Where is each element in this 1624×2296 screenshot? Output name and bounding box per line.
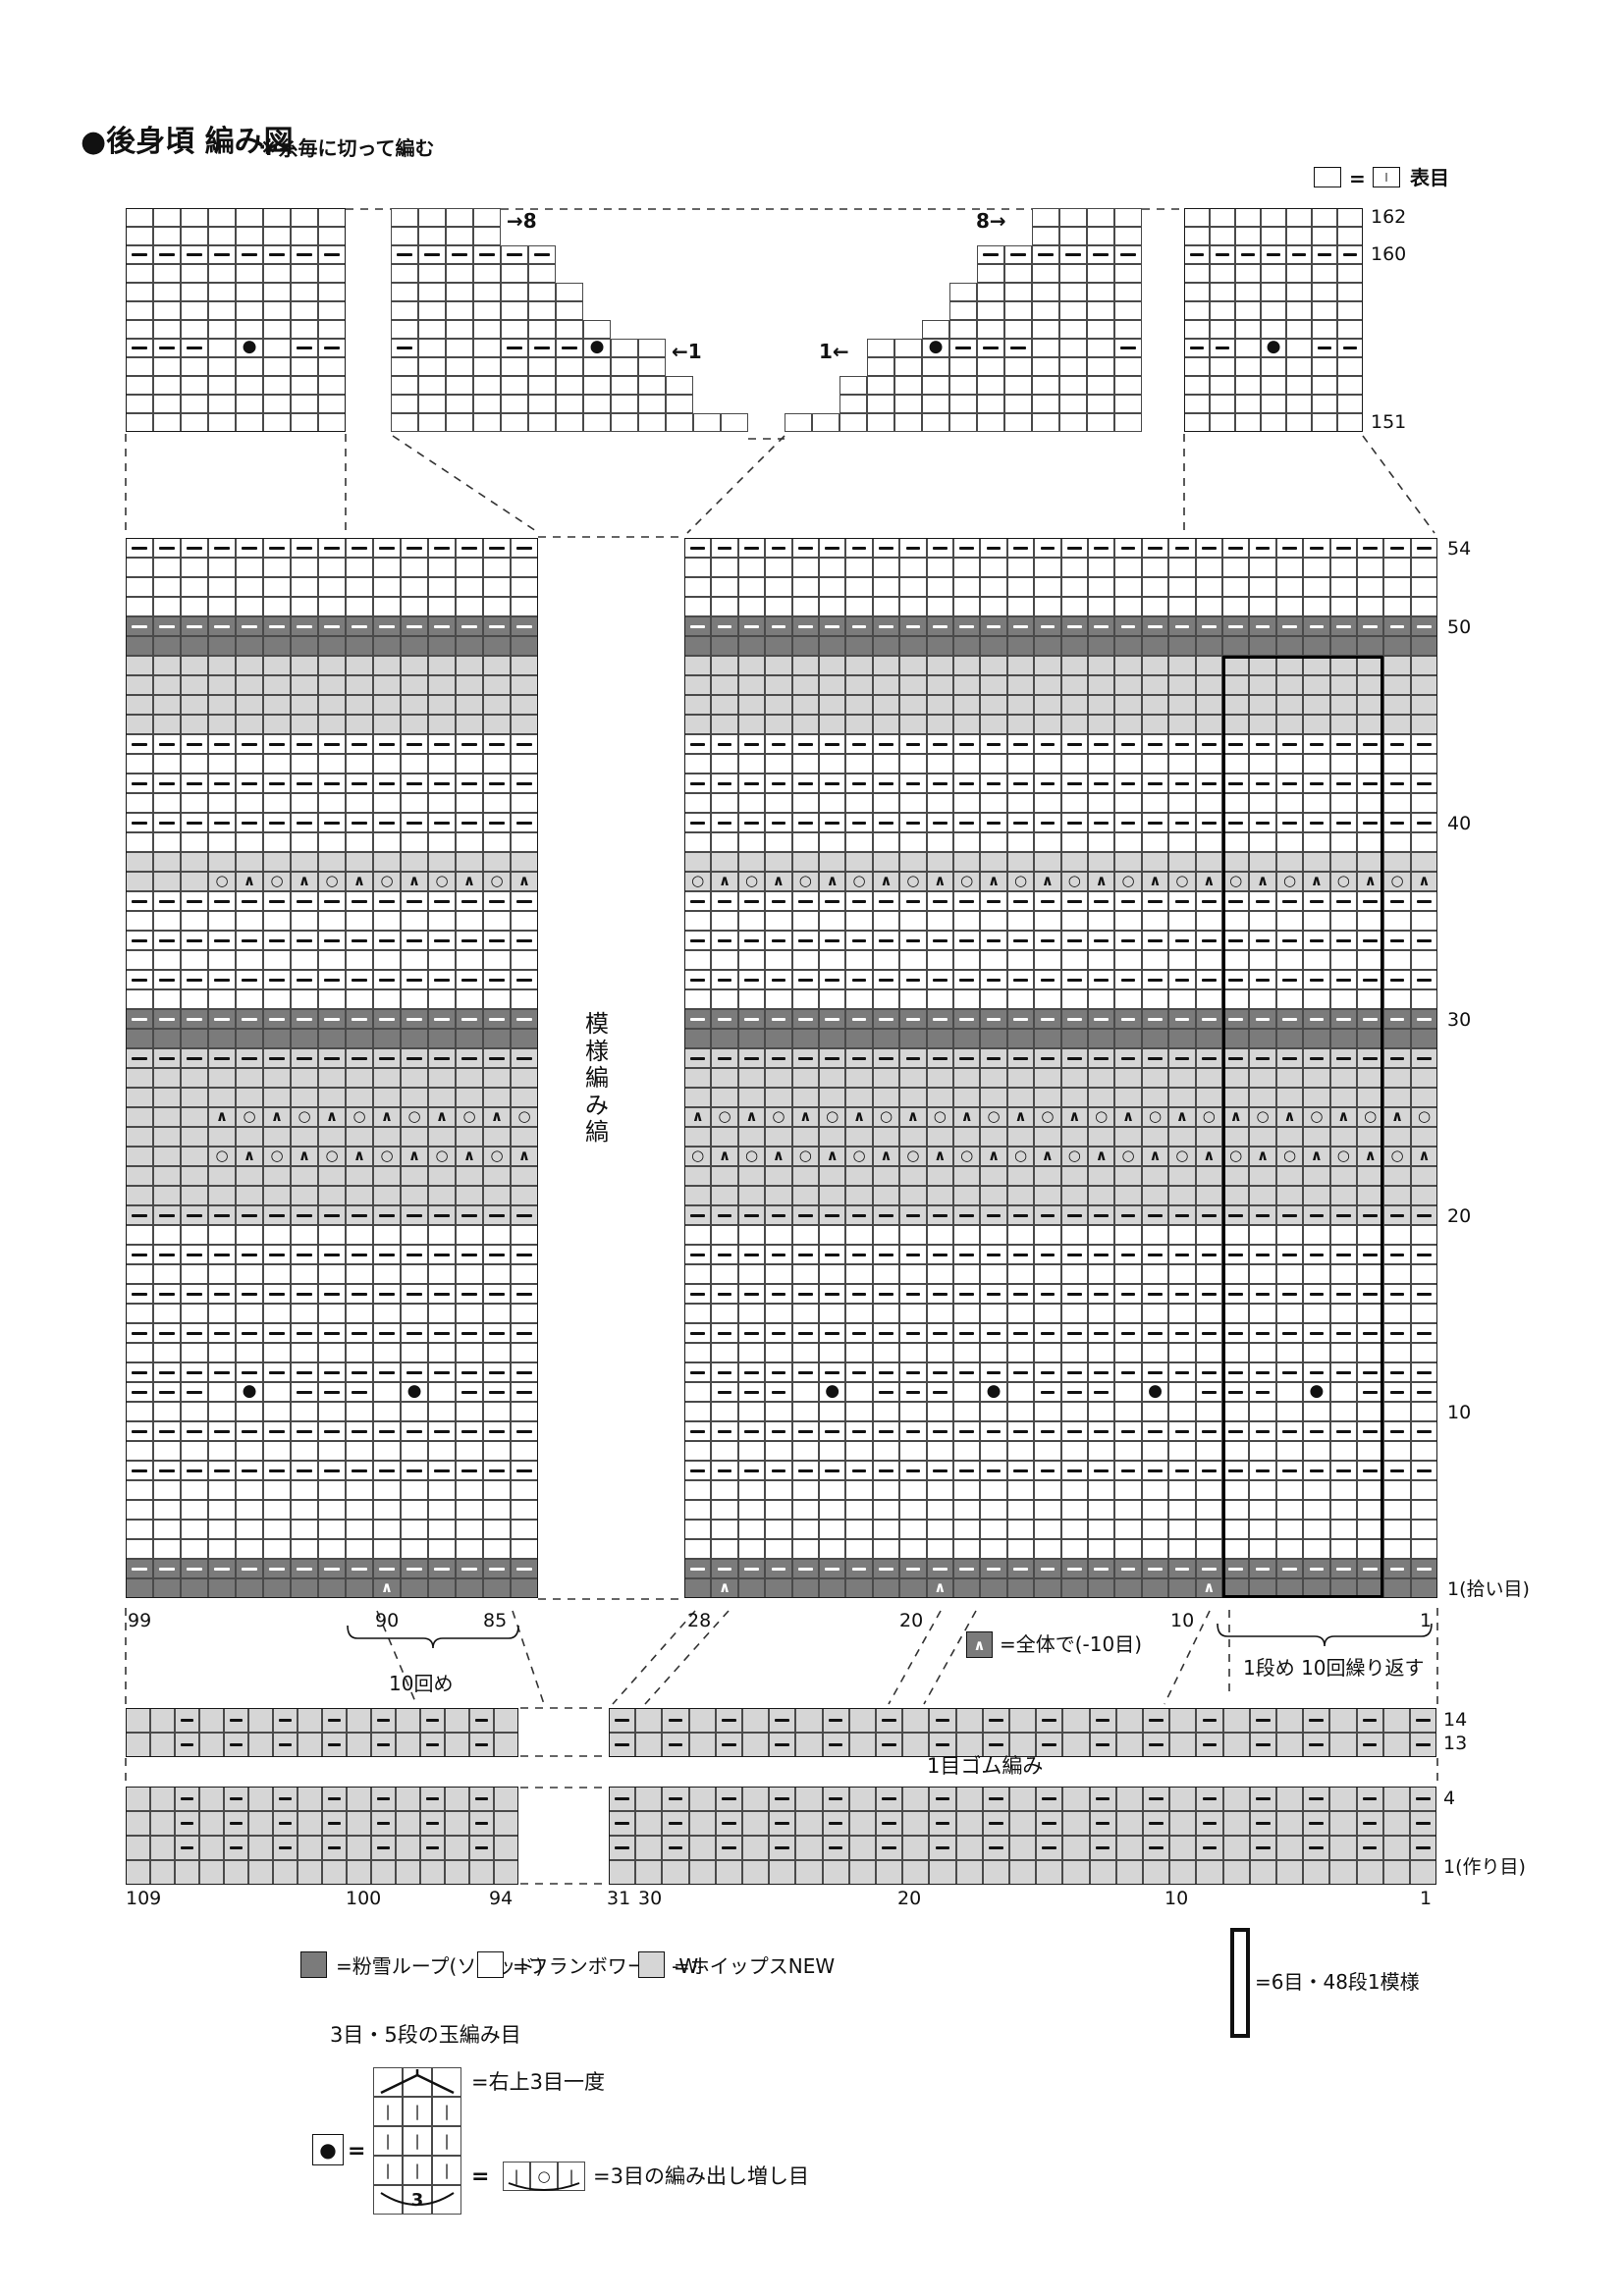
grid-cell bbox=[1411, 656, 1437, 675]
purl-dash-icon bbox=[159, 743, 174, 746]
purl-dash-icon bbox=[181, 1822, 193, 1825]
grid-cell bbox=[684, 1323, 711, 1343]
grid-cell bbox=[291, 1009, 318, 1029]
purl-dash-icon bbox=[489, 1057, 504, 1060]
grid-cell bbox=[1196, 754, 1222, 774]
grid-cell bbox=[263, 1225, 291, 1245]
grid-cell bbox=[1250, 1708, 1276, 1733]
grid-cell bbox=[208, 1539, 236, 1559]
purl-dash-icon bbox=[297, 1371, 311, 1374]
grid-cell bbox=[1061, 1480, 1088, 1500]
purl-dash-icon bbox=[242, 1018, 256, 1021]
grid-cell bbox=[1196, 832, 1222, 852]
grid-cell bbox=[1383, 1559, 1410, 1578]
grid-cell bbox=[1007, 1205, 1034, 1225]
purl-dash-icon bbox=[1390, 1430, 1405, 1433]
grid-cell bbox=[765, 832, 791, 852]
grid-cell bbox=[318, 1205, 346, 1225]
purl-dash-icon bbox=[959, 1430, 974, 1433]
grid-cell bbox=[765, 715, 791, 734]
yarnover-circle-icon: ○ bbox=[325, 874, 338, 888]
grid-cell bbox=[1142, 793, 1168, 813]
purl-dash-icon bbox=[744, 1391, 759, 1394]
grid-cell bbox=[902, 1787, 929, 1811]
grid-cell bbox=[765, 1539, 791, 1559]
grid-cell: ○ bbox=[428, 1147, 456, 1166]
grid-cell: ○ bbox=[1034, 1107, 1060, 1127]
grid-cell bbox=[873, 1088, 899, 1107]
grid-cell bbox=[1168, 715, 1195, 734]
grid-cell bbox=[391, 339, 418, 357]
grid-cell: ∧ bbox=[738, 1107, 765, 1127]
grid-cell bbox=[126, 656, 153, 675]
grid-cell bbox=[1383, 1421, 1410, 1441]
grid-cell bbox=[927, 813, 953, 832]
grid-cell bbox=[899, 793, 926, 813]
grid-cell bbox=[1196, 1186, 1222, 1205]
grid-cell bbox=[391, 264, 418, 283]
grid-cell bbox=[236, 395, 263, 413]
grid-cell bbox=[927, 1480, 953, 1500]
grid-cell bbox=[1142, 911, 1168, 931]
grid-cell bbox=[899, 1382, 926, 1402]
grid-cell bbox=[927, 1166, 953, 1186]
purl-dash-icon bbox=[798, 1057, 813, 1060]
grid-cell bbox=[420, 1811, 445, 1836]
grid-cell: ∧ bbox=[1114, 1107, 1141, 1127]
grid-cell: ○ bbox=[1007, 1147, 1034, 1166]
grid-cell: ∧ bbox=[1383, 1107, 1410, 1127]
grid-cell bbox=[1114, 208, 1142, 227]
grid-cell bbox=[684, 1362, 711, 1382]
grid-cell bbox=[738, 1127, 765, 1147]
grid-cell bbox=[711, 1480, 737, 1500]
purl-dash-icon bbox=[955, 347, 970, 349]
purl-dash-icon bbox=[214, 1469, 229, 1472]
rib-st-20: 20 bbox=[897, 1889, 921, 1909]
purl-dash-icon bbox=[230, 1743, 243, 1746]
purl-dash-icon bbox=[1416, 1797, 1431, 1800]
purl-dash-icon bbox=[829, 1846, 843, 1849]
grid-cell bbox=[126, 1186, 153, 1205]
grid-cell bbox=[819, 558, 845, 577]
grid-cell bbox=[1142, 989, 1168, 1009]
grid-cell: ∧ bbox=[953, 1107, 980, 1127]
grid-cell bbox=[153, 1127, 181, 1147]
grid-cell bbox=[126, 754, 153, 774]
grid-cell bbox=[446, 283, 473, 301]
rib-st-100: 100 bbox=[346, 1889, 381, 1909]
grid-cell bbox=[1169, 1811, 1196, 1836]
grid-cell bbox=[1168, 813, 1195, 832]
purl-dash-icon bbox=[352, 939, 366, 942]
purl-dash-icon bbox=[718, 1057, 732, 1060]
purl-dash-icon bbox=[1202, 1391, 1217, 1394]
purl-dash-icon bbox=[906, 1391, 921, 1394]
grid-cell bbox=[208, 1480, 236, 1500]
grid-cell bbox=[899, 636, 926, 656]
grid-cell bbox=[126, 1323, 153, 1343]
bobble-dot-icon: ● bbox=[590, 339, 605, 355]
grid-cell bbox=[1007, 538, 1034, 558]
grid-cell bbox=[208, 754, 236, 774]
grid-cell bbox=[153, 970, 181, 989]
purl-dash-icon bbox=[987, 822, 1001, 825]
purl-dash-icon bbox=[132, 1568, 146, 1571]
grid-cell bbox=[208, 208, 236, 227]
purl-dash-icon bbox=[214, 743, 229, 746]
grid-cell bbox=[181, 1500, 208, 1520]
grid-cell bbox=[428, 1520, 456, 1539]
grid-cell bbox=[446, 245, 473, 264]
grid-cell bbox=[291, 754, 318, 774]
grid-cell bbox=[1312, 395, 1337, 413]
purl-dash-icon bbox=[352, 1430, 366, 1433]
decrease-icon: ∧ bbox=[961, 1109, 973, 1124]
purl-dash-icon bbox=[452, 253, 466, 256]
purl-dash-icon bbox=[1042, 1822, 1056, 1825]
grid-cell bbox=[1114, 301, 1142, 320]
grid-cell bbox=[556, 339, 583, 357]
grid-cell bbox=[401, 793, 428, 813]
purl-dash-icon bbox=[959, 1018, 974, 1021]
yarnover-circle-icon: ○ bbox=[853, 1148, 866, 1163]
grid-cell: ∧ bbox=[792, 1107, 819, 1127]
purl-dash-icon bbox=[1267, 253, 1280, 256]
grid-cell bbox=[445, 1811, 469, 1836]
purl-dash-icon bbox=[906, 1430, 921, 1433]
grid-cell bbox=[1330, 538, 1357, 558]
grid-cell bbox=[236, 1225, 263, 1245]
purl-dash-icon bbox=[1148, 625, 1163, 628]
grid-cell bbox=[208, 656, 236, 675]
yarnover-circle-icon: ○ bbox=[380, 874, 393, 888]
purl-dash-icon bbox=[269, 979, 284, 982]
purl-dash-icon bbox=[936, 1797, 950, 1800]
grid-cell bbox=[1330, 636, 1357, 656]
grid-cell bbox=[511, 852, 538, 872]
purl-dash-icon bbox=[1202, 1430, 1217, 1433]
purl-dash-icon bbox=[718, 900, 732, 903]
grid-cell bbox=[126, 1836, 150, 1860]
grid-cell bbox=[511, 1500, 538, 1520]
grid-cell bbox=[528, 357, 556, 376]
purl-dash-icon bbox=[1190, 347, 1204, 349]
grid-cell bbox=[1169, 1787, 1196, 1811]
grid-cell bbox=[126, 1811, 150, 1836]
bobble-symbol-box: ● bbox=[312, 2134, 344, 2165]
grid-cell bbox=[346, 597, 373, 616]
purl-dash-icon bbox=[379, 1469, 394, 1472]
purl-dash-icon bbox=[798, 939, 813, 942]
purl-dash-icon bbox=[825, 1254, 839, 1256]
grid-cell bbox=[927, 1343, 953, 1362]
grid-cell bbox=[1168, 1480, 1195, 1500]
grid-cell bbox=[298, 1860, 322, 1885]
grid-cell bbox=[1286, 245, 1312, 264]
grid-cell bbox=[318, 558, 346, 577]
grid-cell bbox=[473, 227, 501, 245]
grid-cell bbox=[373, 1088, 401, 1107]
grid-cell bbox=[1007, 1539, 1034, 1559]
grid-cell bbox=[792, 1421, 819, 1441]
yarnover-circle-icon: ○ bbox=[435, 1148, 448, 1163]
purl-dash-icon bbox=[379, 1018, 394, 1021]
grid-cell bbox=[346, 852, 373, 872]
grid-cell: ∧ bbox=[711, 872, 737, 891]
grid-cell bbox=[181, 891, 208, 911]
purl-dash-icon bbox=[829, 1797, 843, 1800]
grid-cell bbox=[949, 395, 977, 413]
grid-cell bbox=[428, 1088, 456, 1107]
grid-cell bbox=[1312, 339, 1337, 357]
grid-cell bbox=[1169, 1708, 1196, 1733]
grid-cell bbox=[483, 1362, 511, 1382]
grid-cell bbox=[1276, 597, 1303, 616]
purl-dash-icon bbox=[159, 1371, 174, 1374]
purl-dash-icon bbox=[879, 1391, 893, 1394]
grid-cell bbox=[1088, 597, 1114, 616]
purl-dash-icon bbox=[379, 1332, 394, 1335]
grid-cell bbox=[1034, 793, 1060, 813]
grid-cell bbox=[1168, 1127, 1195, 1147]
arrow-left-1: ←1 bbox=[672, 341, 702, 362]
purl-dash-icon bbox=[297, 1430, 311, 1433]
grid-cell bbox=[1312, 357, 1337, 376]
grid-cell bbox=[785, 413, 812, 432]
grid-cell: ○ bbox=[980, 1107, 1006, 1127]
purl-dash-icon bbox=[489, 1469, 504, 1472]
grid-cell bbox=[738, 558, 765, 577]
grid-cell bbox=[899, 1578, 926, 1598]
grid-cell bbox=[1007, 1264, 1034, 1284]
decrease-icon: ∧ bbox=[298, 1148, 310, 1163]
grid-cell bbox=[1143, 1787, 1169, 1811]
purl-dash-icon bbox=[434, 1332, 449, 1335]
grid-cell bbox=[153, 283, 181, 301]
grid-cell: ○ bbox=[1114, 1147, 1141, 1166]
grid-cell bbox=[153, 1461, 181, 1480]
grid-cell bbox=[899, 1461, 926, 1480]
grid-cell bbox=[929, 1836, 955, 1860]
increase-symbol-overlay bbox=[503, 2162, 585, 2201]
grid-cell bbox=[291, 245, 318, 264]
grid-cell bbox=[980, 1225, 1006, 1245]
grid-cell bbox=[396, 1860, 420, 1885]
purl-dash-icon bbox=[1121, 979, 1136, 982]
grid-cell bbox=[1034, 1205, 1060, 1225]
grid-cell bbox=[511, 1205, 538, 1225]
grid-cell bbox=[873, 715, 899, 734]
grid-cell bbox=[792, 852, 819, 872]
grid-cell bbox=[318, 989, 346, 1009]
purl-dash-icon bbox=[297, 979, 311, 982]
grid-cell bbox=[873, 1441, 899, 1461]
grid-cell bbox=[1196, 1733, 1222, 1757]
grid-cell bbox=[456, 891, 483, 911]
grid-cell bbox=[927, 1441, 953, 1461]
grid-cell bbox=[845, 558, 872, 577]
grid-cell bbox=[792, 1205, 819, 1225]
grid-cell bbox=[1007, 734, 1034, 754]
purl-dash-icon bbox=[1282, 625, 1297, 628]
grid-cell bbox=[1034, 1264, 1060, 1284]
grid-cell bbox=[1142, 970, 1168, 989]
grid-cell bbox=[501, 245, 528, 264]
grid-cell bbox=[126, 538, 153, 558]
purl-dash-icon bbox=[269, 900, 284, 903]
grid-cell bbox=[208, 1166, 236, 1186]
grid-cell bbox=[1142, 1343, 1168, 1362]
grid-cell bbox=[199, 1733, 224, 1757]
grid-cell bbox=[1142, 1559, 1168, 1578]
grid-cell bbox=[738, 1578, 765, 1598]
grid-cell bbox=[1169, 1836, 1196, 1860]
grid-cell bbox=[263, 413, 291, 432]
grid-cell: ○ bbox=[711, 1107, 737, 1127]
purl-dash-icon bbox=[718, 547, 732, 550]
grid-cell bbox=[1116, 1733, 1143, 1757]
grid-cell bbox=[1007, 1578, 1034, 1598]
grid-cell bbox=[953, 1362, 980, 1382]
purl-dash-icon bbox=[1121, 1018, 1136, 1021]
grid-cell bbox=[391, 376, 418, 395]
grid-cell bbox=[899, 1323, 926, 1343]
grid-cell bbox=[927, 1029, 953, 1048]
grid-cell bbox=[1383, 675, 1410, 695]
grid-cell bbox=[126, 1860, 150, 1885]
grid-cell bbox=[1142, 715, 1168, 734]
purl-dash-icon bbox=[987, 979, 1001, 982]
grid-cell: ● bbox=[1142, 1382, 1168, 1402]
grid-cell bbox=[1034, 715, 1060, 734]
grid-cell bbox=[1329, 1860, 1356, 1885]
grid-cell bbox=[899, 675, 926, 695]
grid-cell bbox=[263, 989, 291, 1009]
grid-cell bbox=[716, 1708, 742, 1733]
purl-dash-icon bbox=[461, 782, 476, 785]
purl-dash-icon bbox=[1094, 547, 1109, 550]
purl-dash-icon bbox=[461, 1018, 476, 1021]
grid-cell bbox=[980, 950, 1006, 970]
grid-cell bbox=[977, 395, 1004, 413]
grid-cell bbox=[1303, 1811, 1329, 1836]
grid-cell bbox=[1196, 1205, 1222, 1225]
grid-cell bbox=[1337, 357, 1363, 376]
rib-row-13: 13 bbox=[1443, 1734, 1467, 1754]
yarnover-circle-icon: ○ bbox=[719, 1109, 731, 1124]
grid-cell bbox=[1142, 1205, 1168, 1225]
grid-cell bbox=[236, 656, 263, 675]
grid-cell bbox=[1184, 245, 1210, 264]
grid-cell bbox=[792, 1245, 819, 1264]
grid-cell bbox=[181, 1107, 208, 1127]
purl-dash-icon bbox=[1256, 1719, 1271, 1722]
grid-cell bbox=[126, 1382, 153, 1402]
purl-dash-icon bbox=[461, 1254, 476, 1256]
grid-cell bbox=[456, 715, 483, 734]
purl-dash-icon bbox=[187, 743, 201, 746]
purl-dash-icon bbox=[775, 1797, 789, 1800]
grid-cell bbox=[1286, 339, 1312, 357]
grid-cell bbox=[953, 1009, 980, 1029]
grid-cell bbox=[922, 395, 949, 413]
grid-cell bbox=[1383, 970, 1410, 989]
grid-cell bbox=[346, 1421, 373, 1441]
grid-cell bbox=[1036, 1787, 1062, 1811]
grid-cell bbox=[711, 1284, 737, 1304]
grid-cell bbox=[483, 734, 511, 754]
grid-cell bbox=[483, 1264, 511, 1284]
purl-dash-icon bbox=[461, 1057, 476, 1060]
swatch-gray bbox=[638, 1951, 665, 1978]
grid-cell bbox=[291, 1225, 318, 1245]
purl-dash-icon bbox=[1417, 1214, 1432, 1217]
grid-cell bbox=[373, 734, 401, 754]
grid-cell bbox=[1088, 1382, 1114, 1402]
grid-cell bbox=[208, 413, 236, 432]
grid-cell bbox=[980, 1578, 1006, 1598]
grid-cell bbox=[1088, 1264, 1114, 1284]
grid-cell bbox=[1088, 616, 1114, 636]
purl-dash-icon bbox=[1041, 1430, 1056, 1433]
grid-cell bbox=[894, 376, 922, 395]
purl-dash-icon bbox=[1416, 1846, 1431, 1849]
purl-dash-icon bbox=[744, 1018, 759, 1021]
grid-cell bbox=[795, 1787, 822, 1811]
purl-dash-icon bbox=[690, 979, 705, 982]
grid-cell bbox=[263, 538, 291, 558]
grid-cell bbox=[346, 793, 373, 813]
grid-cell bbox=[1007, 1323, 1034, 1343]
grid-cell bbox=[1222, 558, 1249, 577]
grid-cell: ∧ bbox=[401, 872, 428, 891]
grid-cell bbox=[1034, 1009, 1060, 1029]
rib-st-31: 31 bbox=[607, 1889, 630, 1909]
purl-dash-icon bbox=[1096, 1797, 1110, 1800]
grid-cell: ● bbox=[583, 339, 611, 357]
grid-cell bbox=[1303, 636, 1329, 656]
grid-cell bbox=[373, 754, 401, 774]
grid-cell bbox=[980, 734, 1006, 754]
grid-cell bbox=[711, 1186, 737, 1205]
st-85: 85 bbox=[483, 1611, 507, 1631]
grid-cell bbox=[1196, 1421, 1222, 1441]
grid-cell bbox=[819, 538, 845, 558]
grid-cell bbox=[346, 1009, 373, 1029]
grid-cell bbox=[1357, 1733, 1383, 1757]
grid-cell bbox=[980, 1539, 1006, 1559]
grid-cell bbox=[819, 1186, 845, 1205]
grid-cell bbox=[126, 1708, 150, 1733]
grid-cell bbox=[1088, 793, 1114, 813]
grid-cell bbox=[291, 339, 318, 357]
purl-dash-icon bbox=[987, 1254, 1001, 1256]
grid-cell bbox=[792, 1088, 819, 1107]
grid-cell: ○ bbox=[291, 1107, 318, 1127]
purl-dash-icon bbox=[744, 900, 759, 903]
row-151: 151 bbox=[1371, 412, 1406, 433]
purl-dash-icon bbox=[159, 1469, 174, 1472]
grid-cell bbox=[1114, 558, 1141, 577]
grid-cell bbox=[456, 1480, 483, 1500]
purl-dash-icon bbox=[987, 1018, 1001, 1021]
grid-cell bbox=[511, 931, 538, 950]
grid-cell bbox=[236, 376, 263, 395]
grid-cell bbox=[1088, 774, 1114, 793]
grid-cell bbox=[1088, 754, 1114, 774]
purl-dash-icon bbox=[1292, 253, 1306, 256]
